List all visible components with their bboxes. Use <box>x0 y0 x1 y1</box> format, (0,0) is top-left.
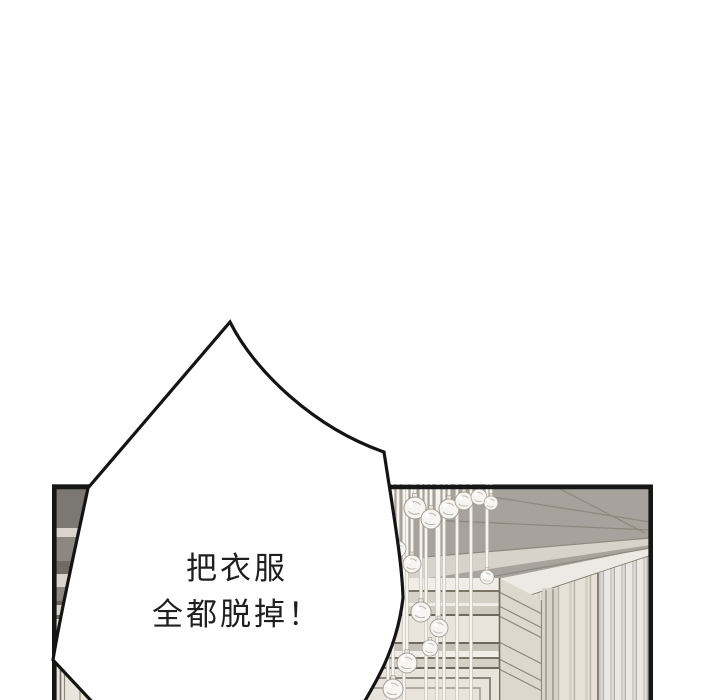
speech-bubble-text: 把衣服 全都脱掉！ <box>117 546 357 638</box>
speech-bubble <box>53 322 403 700</box>
comic-page <box>0 0 720 700</box>
bubble-text-line-1: 把衣服 <box>117 546 357 592</box>
corner-board <box>542 588 558 700</box>
curtain-right <box>598 555 653 700</box>
bubble-text-line-2: 全都脱掉！ <box>117 592 357 638</box>
